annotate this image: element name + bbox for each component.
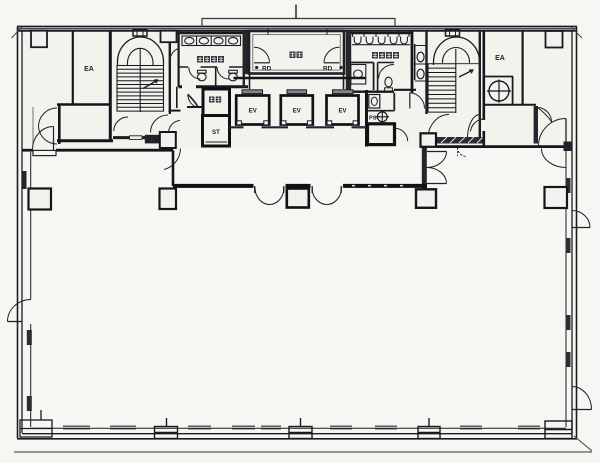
svg-text:EV: EV [338,109,346,115]
svg-text:EA: EA [495,55,505,62]
svg-text:RD: RD [262,66,272,73]
svg-text:EV: EV [293,109,301,115]
svg-text:EA: EA [84,66,94,73]
svg-text:ST: ST [212,129,220,136]
svg-text:RD: RD [323,66,333,73]
svg-text:EV: EV [249,109,257,115]
